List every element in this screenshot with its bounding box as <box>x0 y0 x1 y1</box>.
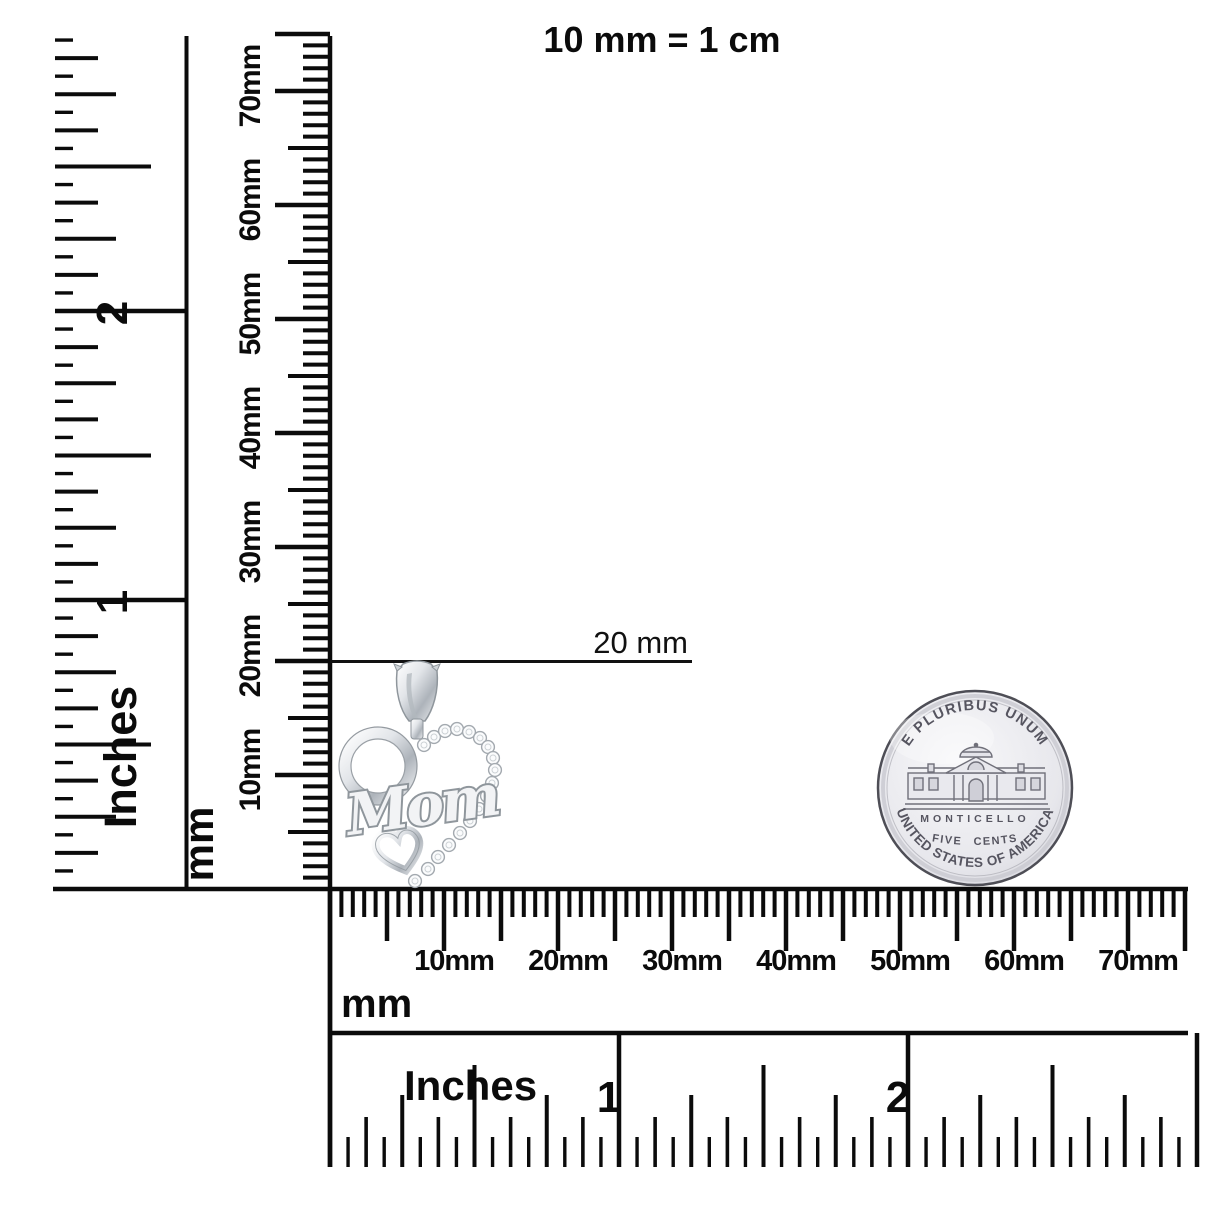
cz-stone <box>409 875 422 888</box>
cz-stone <box>432 851 445 864</box>
mm-tick-label: 50mm <box>870 945 950 977</box>
mm-tick-label: 40mm <box>234 387 267 470</box>
scale-note: 10 mm = 1 cm <box>543 19 780 60</box>
measurement-diagram: 10 mm = 1 cm 21 Inches 10mm20mm30mm40mm5… <box>0 0 1214 1214</box>
mm-tick-label: 10mm <box>414 945 494 977</box>
left-mm-unit-label: mm <box>175 807 222 882</box>
bottom-inch-unit-label: Inches <box>404 1062 537 1109</box>
mm-tick-label: 10mm <box>234 729 267 812</box>
cz-stone <box>451 723 464 736</box>
product-scale-image: 10 mm = 1 cm 21 Inches 10mm20mm30mm40mm5… <box>0 0 1214 1214</box>
annotation-label: 20 mm <box>593 625 688 660</box>
mm-tick-label: 20mm <box>528 945 608 977</box>
left-inch-ruler: 21 Inches <box>55 36 187 889</box>
bottom-mm-unit-label: mm <box>341 982 412 1026</box>
mm-tick-label: 30mm <box>642 945 722 977</box>
mm-tick-label: 70mm <box>234 45 267 128</box>
bottom-mm-ruler: 10mm20mm30mm40mm50mm60mm70mm mm <box>341 891 1185 1026</box>
size-annotation: 20 mm <box>330 625 692 662</box>
mm-tick-label: 40mm <box>756 945 836 977</box>
inch-number-label: 1 <box>597 1073 621 1122</box>
cz-stone <box>443 839 456 852</box>
pendant-engraving: Mom <box>340 761 502 849</box>
pendant-bail <box>397 661 438 721</box>
inch-number-label: 1 <box>88 590 137 614</box>
coin-building-label: MONTICELLO <box>920 813 1029 825</box>
cz-stone <box>439 725 452 738</box>
inch-number-label: 2 <box>886 1073 910 1122</box>
left-mm-ruler: 10mm20mm30mm40mm50mm60mm70mm mm <box>175 34 330 1167</box>
mm-tick-label: 60mm <box>234 159 267 242</box>
mm-tick-label: 20mm <box>234 615 267 698</box>
mm-tick-label: 30mm <box>234 501 267 584</box>
mm-tick-label: 70mm <box>1098 945 1178 977</box>
inch-number-label: 2 <box>88 301 137 325</box>
bottom-inch-ruler: 12 Inches <box>328 889 1197 1167</box>
cz-stone <box>422 863 435 876</box>
left-inch-unit-label: Inches <box>95 686 146 829</box>
nickel-coin: E PLURIBUS UNUM UNITED STATES OF AMERICA… <box>878 691 1072 885</box>
mm-tick-label: 50mm <box>234 273 267 356</box>
mm-tick-label: 60mm <box>984 945 1064 977</box>
pendant: Mom <box>339 661 502 887</box>
